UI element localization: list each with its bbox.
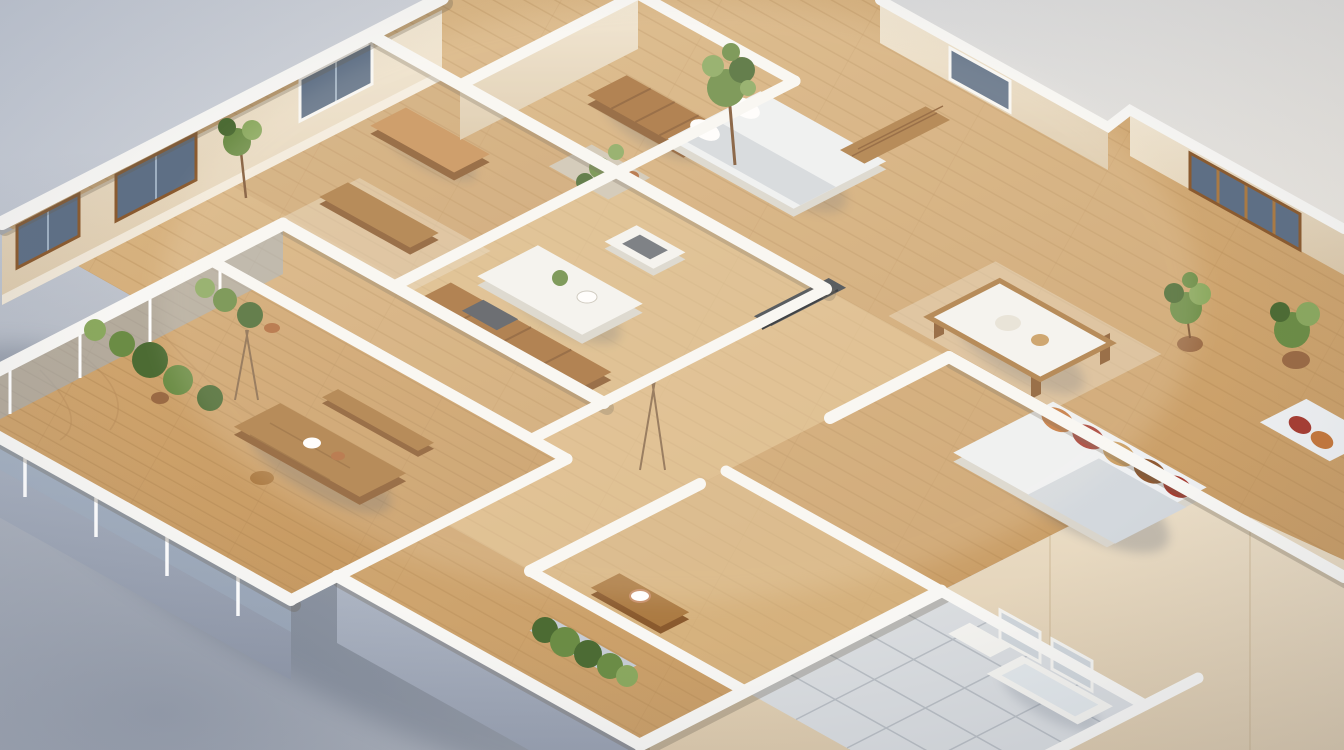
vignette — [0, 0, 1344, 750]
isometric-apartment-illustration — [0, 0, 1344, 750]
floor-plan-render — [0, 0, 1344, 750]
